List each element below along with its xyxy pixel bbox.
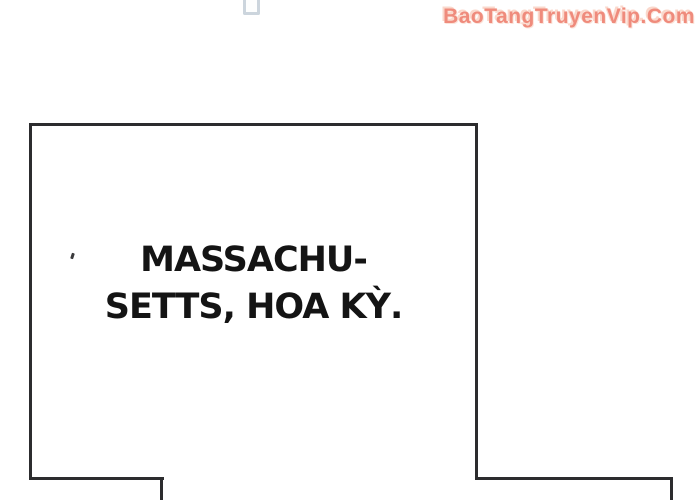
panel-border-top: [29, 123, 478, 126]
dialogue-caption: MASSACHU- SETTS, HOA KỲ.: [29, 237, 478, 331]
panel-border-step-right-h: [475, 477, 673, 480]
panel-border-step-left-v: [160, 477, 163, 500]
panel-border-step-right-v: [670, 477, 673, 500]
cutoff-object-icon: [243, 0, 260, 15]
caption-line-2: SETTS, HOA KỲ.: [29, 284, 478, 331]
comic-page: BaoTangTruyenVip.Com MASSACHU- SETTS, HO…: [0, 0, 700, 500]
caption-line-1: MASSACHU-: [29, 237, 478, 284]
site-watermark: BaoTangTruyenVip.Com: [443, 5, 695, 29]
panel-border-step-left-h: [29, 477, 164, 480]
